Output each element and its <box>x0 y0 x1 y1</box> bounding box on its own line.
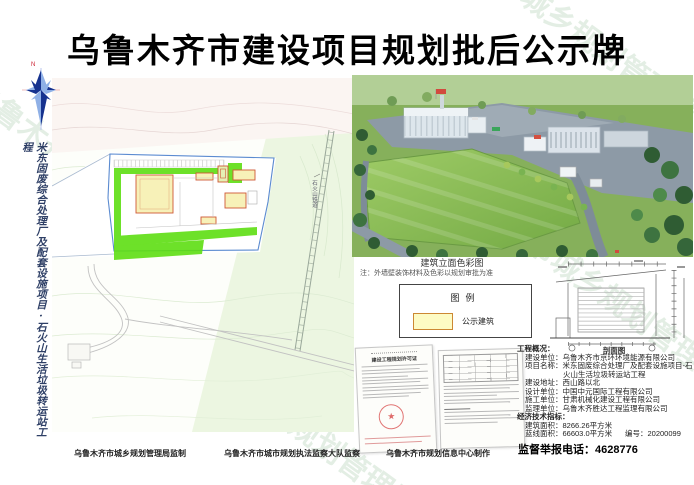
footer-org-produce: 乌鲁木齐市规划信息中心制作 <box>386 448 490 459</box>
permit-annex-document <box>438 348 526 449</box>
legend-box: 图例 公示建筑 <box>399 284 532 338</box>
footer-org-inspect: 乌鲁木齐市城市规划执法监察大队监察 <box>224 448 360 459</box>
legend-title: 图例 <box>400 291 531 304</box>
railway-label: 石火山铁道 <box>311 180 318 209</box>
compass-icon <box>22 68 60 130</box>
aerial-rendering <box>352 75 693 257</box>
report-hotline: 监督举报电话：4628776 <box>518 441 638 457</box>
uyghur-title-line <box>371 351 417 354</box>
legend-swatch <box>413 313 453 330</box>
serial-number: 编号：20200099 <box>625 428 681 439</box>
annex-table <box>443 353 519 383</box>
distant-trees-band <box>352 75 693 105</box>
page-title: 乌鲁木齐市建设项目规划批后公示牌 <box>0 24 694 72</box>
footer-org-supervise: 乌鲁木齐市城乡规划管理局监制 <box>74 448 186 459</box>
project-overview: 工程概况： 建设单位：乌鲁木齐市京环环境能源有限公司 项目名称：米东固废综合处理… <box>517 345 694 439</box>
notice-board: 乌鲁木齐市城乡规划管理局 乌鲁木齐市城乡规划管理局 乌鲁木齐市城乡规划管理局 乌… <box>0 0 694 485</box>
official-seal-icon: ★ <box>378 404 404 430</box>
section-drawing: 剖面图 <box>538 258 693 354</box>
overview-line: 项目名称：米东固废综合处理厂及配套设施项目-石火山生活垃圾转运站工程 <box>517 362 694 379</box>
legend-item-label: 公示建筑 <box>462 316 494 327</box>
site-plan-map: 石火山铁道 <box>52 78 354 432</box>
rendering-note: 注：外墙壁装饰材料及色彩以规划审批为准 <box>360 268 493 278</box>
project-name-vertical: 米东固废综合处理厂及配套设施项目·石火山生活垃圾转运站工程 <box>20 142 48 447</box>
permit-title: 建设工程规划许可证 <box>364 354 425 364</box>
planning-permit-certificate: 建设工程规划许可证 ★ <box>355 344 438 453</box>
